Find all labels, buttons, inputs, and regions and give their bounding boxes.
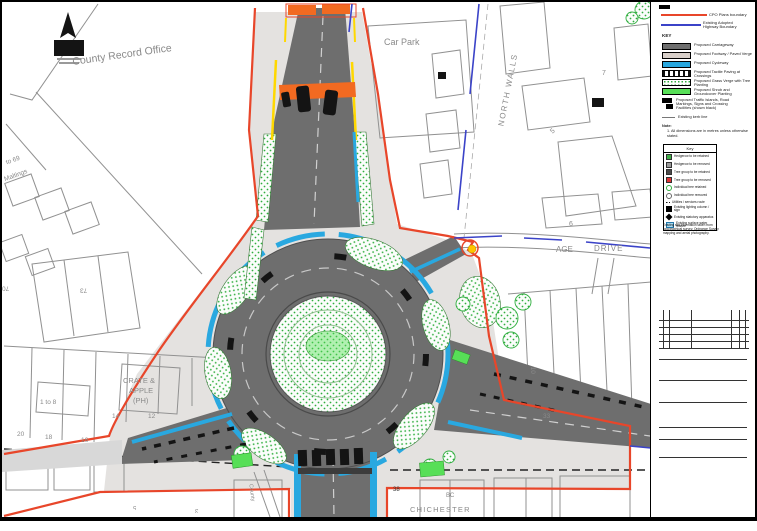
sheet-bottom-rule (0, 517, 757, 521)
drawing-sheet: County Record Office Car Park NORTH WALL… (0, 0, 757, 531)
sheet-frame (0, 0, 757, 521)
